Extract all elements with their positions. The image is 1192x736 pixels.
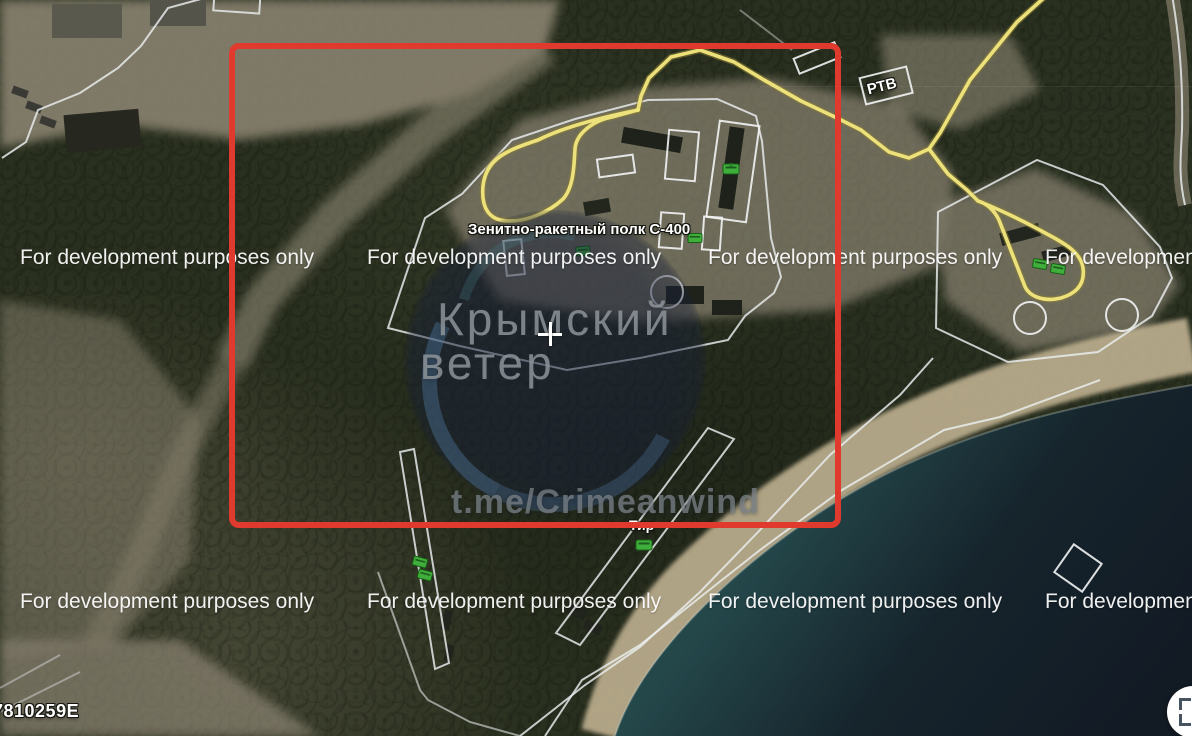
dev-watermark: For development purposes only xyxy=(1045,246,1192,270)
satellite-map-view: Крымский ветер t.me/Crimeanwind Зенитно-… xyxy=(0,0,1192,736)
dev-watermark: For development purposes only xyxy=(708,590,1002,614)
annotation-rectangle xyxy=(229,43,841,528)
expand-arrows-icon xyxy=(1179,698,1191,710)
dev-watermark: For development purposes only xyxy=(367,590,661,614)
dev-watermark: For development purposes only xyxy=(20,590,314,614)
coordinates-readout: 7810259E xyxy=(0,701,79,722)
dev-watermark: For development purposes only xyxy=(1045,590,1192,614)
